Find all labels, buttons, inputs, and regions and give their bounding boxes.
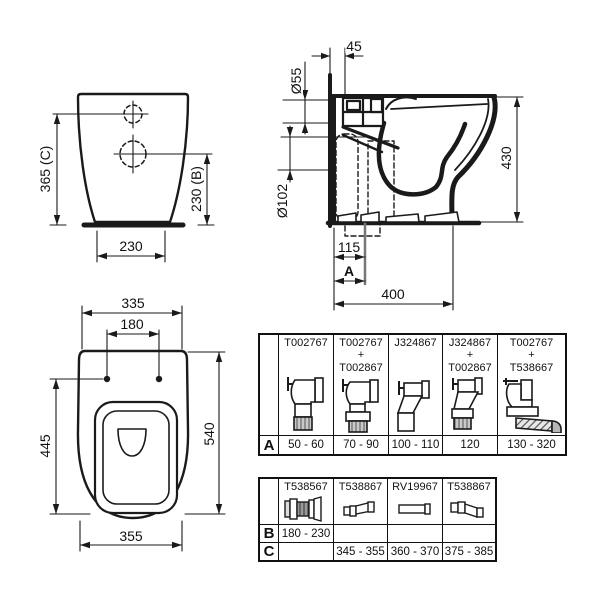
dim-label-wall-offset: 45: [345, 39, 363, 53]
offset-connector-icon: [396, 377, 436, 433]
table-a-col-4: J324867 + T002867: [442, 335, 497, 435]
dim-label-depth: 400: [380, 287, 405, 301]
technical-drawing-page: 365 (C) 230 (B) 230 45 Ø55 Ø102 430 115 …: [0, 0, 603, 603]
table-bc-col-4: T538867: [442, 479, 495, 524]
table-bc-range-b1: 180 - 230: [278, 524, 333, 542]
dim-label-a: A: [343, 264, 355, 278]
connection-table-a: T002767 T002767 + T002867: [258, 333, 567, 456]
table-a-range-4: 120: [442, 435, 497, 454]
table-a-col-2: T002767 + T002867: [333, 335, 388, 435]
table-a-row-label: A: [260, 435, 278, 454]
dim-label-height-b: 230 (B): [189, 165, 203, 213]
side-view-drawing: [278, 48, 523, 310]
table-a-col-5: T002767 + T538667: [497, 335, 565, 435]
elbow-90-icon: [284, 375, 328, 433]
elbow-90-extension-icon: [339, 377, 383, 433]
table-a-range-1: 50 - 60: [278, 435, 333, 454]
table-a-corner-cell: [260, 335, 278, 435]
table-bc-col-2: T538867: [333, 479, 387, 524]
table-a-range-3: 100 - 110: [388, 435, 442, 454]
part-number: J324867 + T002867: [448, 335, 491, 374]
dim-label-width-lid: 335: [120, 296, 145, 310]
table-bc-range-b3: [387, 524, 442, 542]
dim-label-length-bowl: 445: [38, 433, 52, 458]
part-number: T002767 + T002867: [339, 335, 382, 374]
dim-label-width-max: 355: [118, 529, 143, 543]
connection-table-bc: T538567 T538867 RV19967: [258, 477, 497, 562]
table-a-col-1: T002767: [278, 335, 333, 435]
table-a-col-3: J324867: [388, 335, 442, 435]
dim-label-outlet-diameter: Ø102: [275, 183, 289, 219]
part-number: T538867: [339, 479, 382, 493]
stepped-connector-icon: [449, 498, 489, 520]
part-number: T002767 + T538667: [510, 335, 553, 374]
table-bc-col-3: RV19967: [387, 479, 442, 524]
part-number: T538867: [447, 479, 490, 493]
dim-label-height: 430: [499, 145, 513, 170]
top-view-drawing: [50, 306, 225, 551]
compact-connector-icon: [341, 498, 381, 520]
table-bc-row-b-label: B: [260, 524, 278, 542]
straight-pipe-icon: [395, 500, 435, 518]
table-bc-corner-cell: [260, 479, 278, 524]
dim-label-base-width: 230: [118, 239, 143, 253]
dim-label-length: 540: [202, 421, 216, 446]
table-bc-range-c2: 345 - 355: [333, 542, 387, 560]
part-number: J324867: [394, 335, 436, 349]
part-number: T002767: [284, 335, 327, 349]
table-bc-range-b4: [442, 524, 495, 542]
dim-label-hole-spacing: 180: [119, 317, 144, 331]
table-a-range-2: 70 - 90: [333, 435, 388, 454]
table-bc-range-c1: [278, 542, 333, 560]
part-number: T538567: [284, 479, 327, 493]
table-bc-range-c3: 360 - 370: [387, 542, 442, 560]
table-bc-row-c-label: C: [260, 542, 278, 560]
part-number: RV19967: [392, 479, 438, 493]
multi-coupling-icon: [283, 496, 329, 522]
dim-label-inlet-diameter: Ø55: [289, 67, 303, 95]
table-bc-col-1: T538567: [278, 479, 333, 524]
dim-label-outlet-distance: 115: [337, 240, 361, 254]
dim-label-height-c: 365 (C): [38, 145, 52, 194]
offset-connector-extension-icon: [450, 377, 490, 433]
table-a-range-5: 130 - 320: [497, 435, 565, 454]
table-bc-range-b2: [333, 524, 387, 542]
table-bc-range-c4: 375 - 385: [442, 542, 495, 560]
elbow-flexible-hose-icon: [500, 377, 564, 433]
